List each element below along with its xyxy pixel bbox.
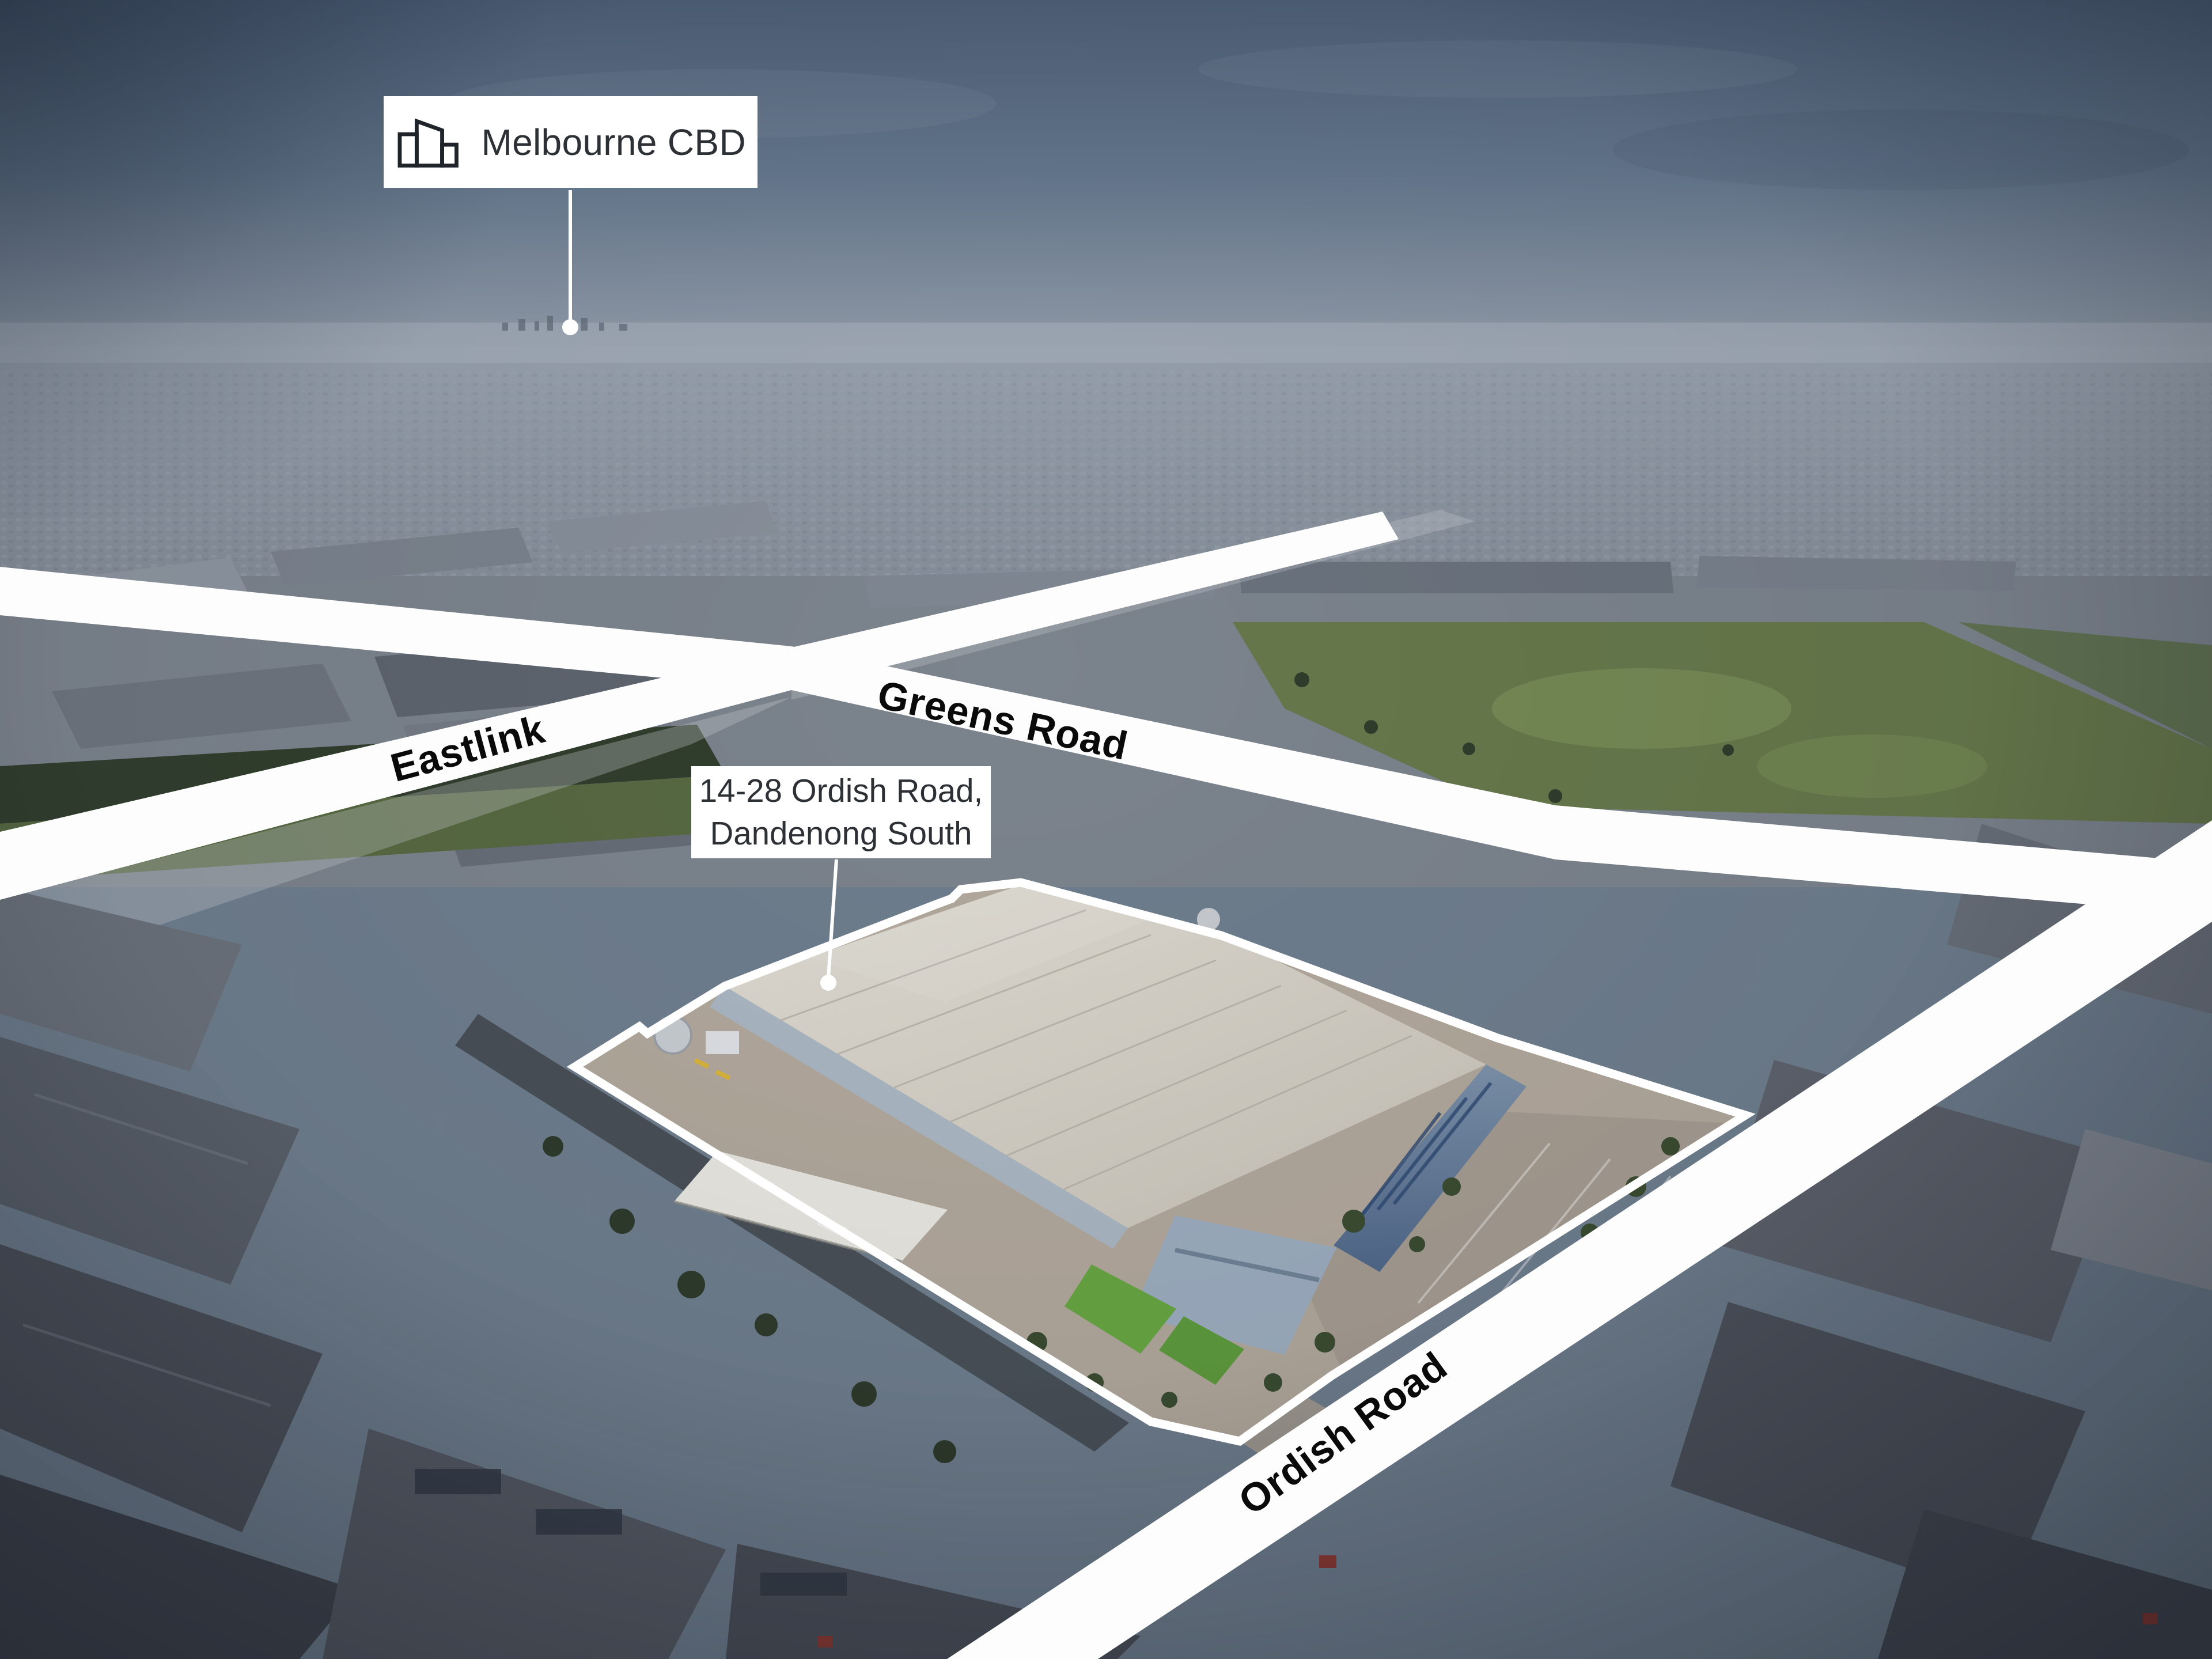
- property-address-callout: 14-28 Ordish Road, Dandenong South: [691, 766, 991, 858]
- property-address-line1: 14-28 Ordish Road,: [699, 770, 983, 813]
- annotated-aerial-map: Melbourne CBD 14-28 Ordish Road, Dandeno…: [0, 0, 2212, 1659]
- property-dot: [820, 975, 836, 991]
- melbourne-cbd-callout: Melbourne CBD: [384, 96, 757, 188]
- aerial-photo-backdrop: [0, 0, 2212, 1659]
- melbourne-cbd-label: Melbourne CBD: [481, 121, 745, 164]
- property-address-line2: Dandenong South: [710, 812, 972, 855]
- city-buildings-icon: [395, 115, 460, 169]
- melbourne-dot: [562, 319, 578, 335]
